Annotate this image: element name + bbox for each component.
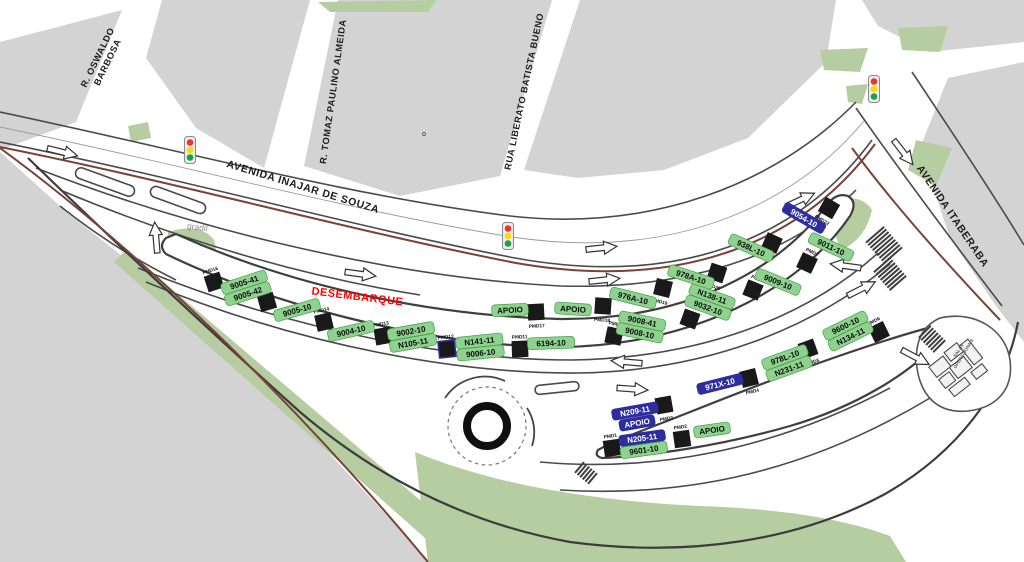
direction-arrow-icon [617, 381, 649, 396]
svg-text:6194-10: 6194-10 [536, 338, 566, 348]
platform-stop-marker [527, 303, 544, 320]
platform-PMD12: PMD12N141-119006-10 [437, 333, 504, 362]
traffic-light-icon [503, 223, 514, 250]
bus-line-label: APOIO [491, 303, 528, 317]
platform-stop-marker [594, 297, 612, 315]
bus-line-label: 976A-10 [609, 287, 658, 310]
direction-arrow-icon [845, 276, 879, 302]
zebra-crossing [866, 227, 902, 263]
platform-id-label: PMD17 [529, 323, 546, 330]
platform-stop-marker [512, 341, 529, 358]
traffic-light-icon [869, 76, 880, 103]
platform-stop-marker [603, 439, 622, 458]
bus-line-label: 6194-10 [527, 336, 574, 349]
zebra-crossing [575, 462, 597, 484]
svg-text:APOIO: APOIO [560, 304, 586, 315]
bus-line-label: 971X-10 [696, 373, 745, 396]
platform-PMD1: PMD1N205-119601-10 [602, 429, 668, 459]
platform-stop-marker [673, 430, 692, 449]
platform-PMD4: PMD4971X-10 [696, 368, 761, 397]
platform-id-label: PMD18 [594, 317, 611, 324]
platform-id-label: PMD11 [512, 334, 528, 341]
traffic-light-icon [185, 137, 196, 164]
svg-text:APOIO: APOIO [497, 305, 523, 315]
direction-arrow-icon [344, 265, 377, 282]
bus-terminal-map: PMD1N205-119601-10PMD2APOIOPMD3N209-11AP… [0, 0, 1024, 562]
bus-line-label: 9004-10 [327, 320, 376, 342]
platform-stop-marker [438, 340, 456, 358]
platform-PMD11: PMD116194-10 [511, 334, 574, 357]
bus-line-label: APOIO [554, 302, 591, 316]
terminal-map-canvas: PMD1N205-119601-10PMD2APOIOPMD3N209-11AP… [0, 0, 1024, 562]
